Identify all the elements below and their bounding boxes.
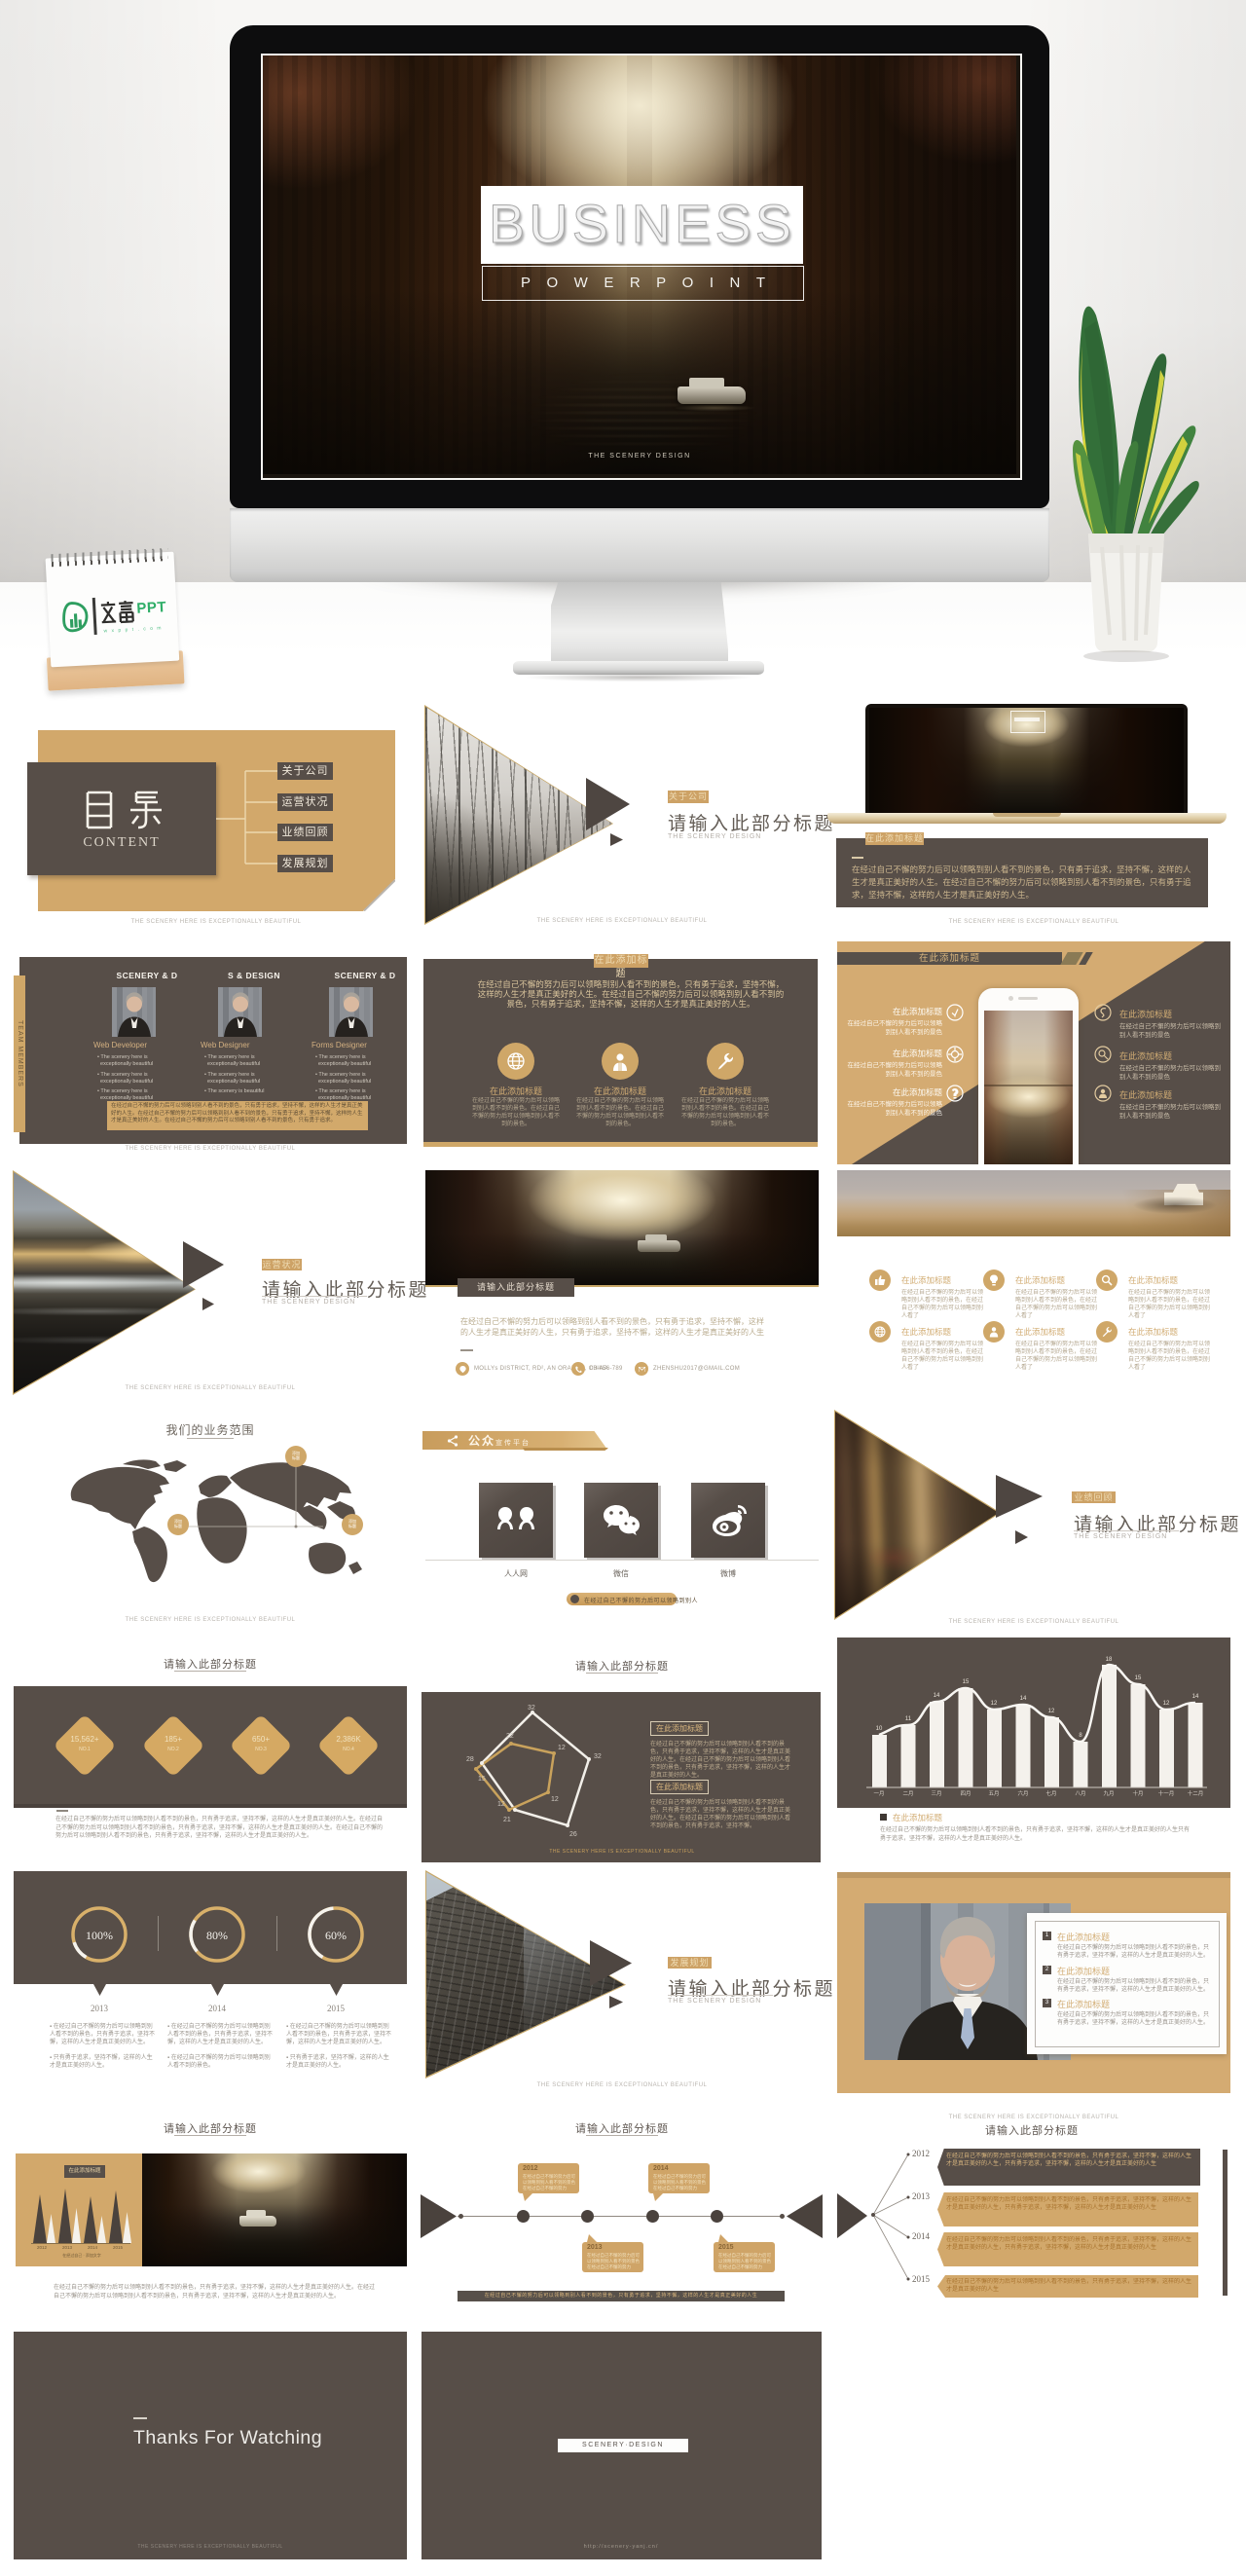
svg-text:三月: 三月 [931,1790,941,1797]
svg-text:12: 12 [991,1701,998,1707]
svg-text:2015: 2015 [113,2245,124,2250]
svg-text:21: 21 [503,1817,511,1823]
svg-text:2012: 2012 [37,2245,48,2250]
svg-text:32: 32 [594,1753,602,1760]
svg-text:九月: 九月 [1103,1789,1114,1797]
svg-text:十一月: 十一月 [1158,1789,1175,1797]
svg-text:十二月: 十二月 [1188,1789,1204,1797]
svg-text:28: 28 [466,1756,474,1763]
svg-text:22: 22 [506,1733,514,1740]
svg-text:26: 26 [569,1831,577,1838]
svg-text:18: 18 [1106,1657,1113,1663]
svg-text:12: 12 [551,1796,559,1803]
svg-text:60%: 60% [325,1929,347,1942]
svg-text:15: 15 [478,1776,486,1783]
svg-text:10: 10 [876,1726,883,1732]
svg-text:32: 32 [528,1705,535,1711]
svg-text:二月: 二月 [902,1790,913,1797]
svg-text:100%: 100% [86,1929,113,1942]
svg-text:15: 15 [1135,1675,1142,1681]
svg-text:六月: 六月 [1017,1789,1028,1797]
svg-text:80%: 80% [206,1929,228,1942]
svg-text:12: 12 [1048,1709,1055,1714]
svg-text:14: 14 [934,1693,940,1699]
svg-text:七月: 七月 [1045,1789,1056,1797]
svg-text:14: 14 [1192,1694,1199,1700]
svg-text:十月: 十月 [1132,1789,1143,1797]
svg-text:2014: 2014 [88,2245,98,2250]
svg-text:12: 12 [558,1745,566,1751]
svg-text:一月: 一月 [873,1790,884,1797]
svg-text:2013: 2013 [62,2245,73,2250]
svg-text:八月: 八月 [1075,1790,1085,1797]
svg-text:12: 12 [1163,1701,1170,1707]
svg-text:8: 8 [1079,1733,1082,1739]
svg-text:15: 15 [963,1679,970,1685]
svg-text:四月: 四月 [960,1790,971,1797]
svg-text:五月: 五月 [988,1790,999,1797]
svg-text:11: 11 [905,1716,912,1722]
svg-text:12: 12 [497,1801,505,1808]
svg-text:14: 14 [1020,1696,1027,1702]
